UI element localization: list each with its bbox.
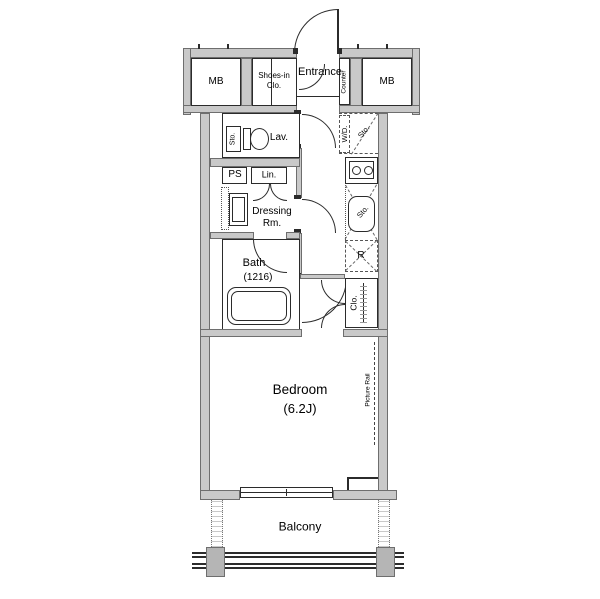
wall-top-left	[183, 48, 297, 58]
balcony-post-left	[206, 547, 225, 577]
entrance-door-arc	[294, 9, 338, 53]
balcony-post-right	[376, 547, 395, 577]
label-lav-storage: Sto.	[229, 133, 236, 145]
wd-area-bottom-dotted	[339, 153, 378, 154]
picture-rail-line	[374, 342, 375, 445]
entrance-hinge-right	[337, 48, 342, 54]
label-counter: Counter	[342, 70, 349, 93]
wall-top-right	[339, 48, 420, 58]
wall-dressing-bath-left	[210, 232, 254, 239]
wall-tick	[386, 44, 388, 49]
label-linen: Lin.	[262, 170, 277, 179]
wall-tick	[198, 44, 200, 49]
door-jamb	[294, 195, 301, 199]
bedroom-step-v	[347, 477, 349, 491]
wall-tick	[227, 44, 229, 49]
entrance-step-line	[297, 96, 339, 97]
linen-door-left-arc	[253, 184, 270, 201]
label-dressing-2: Rm.	[263, 219, 281, 230]
wall-counter-mbright	[350, 58, 362, 106]
dressing-door-arc	[302, 199, 336, 233]
entrance-door-leaf	[337, 9, 339, 53]
burner-left	[352, 166, 361, 175]
label-dressing-1: Dressing	[252, 207, 291, 218]
label-washer-dryer: W/D.	[341, 126, 349, 143]
burner-right	[364, 166, 373, 175]
linen-door-right-arc	[270, 184, 287, 201]
label-picture-rail: Picture Rail	[366, 373, 373, 406]
shoes-closet-door-arc	[299, 64, 325, 90]
wall-left-main	[200, 113, 210, 500]
wall-bottom-left	[200, 490, 240, 500]
label-shoes-2: Clo.	[267, 82, 281, 90]
label-bedroom-2: (6.2J)	[283, 402, 316, 416]
wall-bottom-right	[333, 490, 397, 500]
toilet-bowl	[250, 128, 269, 150]
label-wd-storage: Sto.	[357, 124, 372, 139]
label-lav: Lav.	[270, 133, 288, 144]
balcony-column-left	[211, 500, 223, 547]
closet-hanger-hatch	[360, 283, 367, 323]
entrance-hinge-left	[293, 48, 298, 54]
label-closet: Clo.	[350, 295, 359, 310]
label-bedroom-1: Bedroom	[273, 383, 328, 397]
label-mb-left: MB	[209, 77, 224, 88]
label-ps: PS	[228, 170, 241, 181]
wall-bedroom-top-right	[343, 329, 388, 337]
label-bath-2: (1216)	[244, 273, 273, 284]
label-balcony: Balcony	[279, 521, 322, 534]
label-mb-right: MB	[380, 77, 395, 88]
bedroom-step-h	[347, 477, 378, 479]
wall-tick	[357, 44, 359, 49]
label-refrigerator: R	[357, 251, 364, 262]
wd-area-top-dotted	[339, 113, 378, 114]
label-shoes-1: Shoes-in	[258, 72, 290, 80]
bedroom-window-latch	[286, 489, 287, 496]
wall-dressing-bath-right	[286, 232, 300, 239]
bathtub-inner	[231, 291, 287, 321]
floor-plan: MB MB Shoes-in Clo. Counter Entrance Sto…	[0, 0, 600, 599]
wall-right-main	[378, 113, 388, 500]
washer-pan-inner	[232, 197, 245, 222]
wall-lav-bottom	[210, 158, 300, 167]
wall-bedroom-top-left	[200, 329, 302, 337]
wall-topsec-bottom-left	[183, 105, 297, 113]
dressing-duct	[221, 187, 229, 230]
wall-topsec-bottom-right	[339, 105, 420, 113]
lavatory-door-arc	[302, 114, 336, 148]
balcony-column-right	[378, 500, 390, 547]
